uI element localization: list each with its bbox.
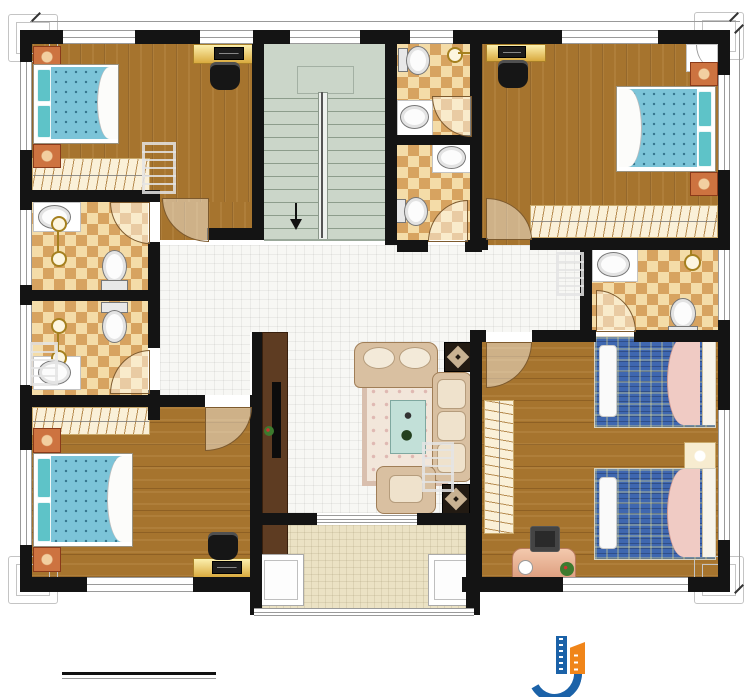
window [20, 450, 32, 545]
sofa-cushion [389, 475, 423, 503]
wall-segment [32, 190, 160, 202]
sink-basin [38, 360, 71, 385]
logo-building-blue [556, 636, 567, 674]
pillow [599, 345, 617, 417]
towel-ring [684, 254, 701, 271]
wall-segment [252, 44, 264, 240]
wall-segment [385, 44, 397, 245]
wall-segment [718, 540, 730, 592]
blanket-fold [667, 337, 700, 425]
window [718, 250, 730, 320]
window [200, 30, 253, 44]
speaker-cone [447, 346, 470, 369]
towel-ring [51, 216, 67, 232]
wall-segment [207, 228, 252, 240]
wall-segment [250, 407, 262, 592]
double-bed-tr [616, 86, 716, 172]
wardrobe-bedroom-tr [530, 205, 718, 238]
dimension-line-right [739, 28, 740, 590]
wall-segment [532, 330, 592, 342]
pillow [37, 502, 51, 542]
wall-segment [360, 30, 410, 44]
tv [272, 382, 281, 458]
title-block [0, 620, 750, 697]
window [290, 30, 360, 44]
balcony-planter [258, 554, 304, 606]
sofa-pillow [363, 347, 395, 369]
balcony-outer-rail [254, 608, 474, 616]
window [20, 305, 32, 385]
stair-handrail-line [321, 92, 323, 238]
wall-segment [148, 190, 160, 202]
double-bed-bl [33, 453, 133, 547]
dimension-line-top [30, 21, 740, 22]
wall-segment [20, 545, 32, 592]
duvet-fold [97, 67, 118, 139]
window [562, 30, 658, 44]
bed-foot [702, 337, 715, 425]
laptop [214, 47, 244, 60]
window [563, 577, 688, 592]
wall-segment [397, 135, 470, 145]
window [63, 30, 135, 44]
wall-segment [718, 30, 730, 75]
wall-segment [253, 30, 290, 44]
sofa-cushion [437, 443, 466, 473]
double-bed-tl [33, 64, 119, 144]
sofa-top [354, 342, 438, 388]
wall-segment [580, 250, 592, 332]
sink-basin [400, 105, 429, 129]
speaker-center [455, 354, 462, 361]
coffee-table [390, 400, 426, 454]
wall-segment [482, 330, 486, 342]
toilet-bowl [102, 310, 127, 343]
nightstand [33, 428, 61, 453]
armchair-bottom [376, 466, 436, 514]
title-underline [62, 672, 216, 675]
wall-segment [397, 240, 428, 252]
cup [518, 560, 533, 575]
stair-direction-arrowhead [290, 219, 302, 230]
wall-segment [718, 170, 730, 250]
office-chair [498, 60, 528, 88]
toilet-bowl [406, 46, 430, 75]
pillow [37, 105, 51, 138]
wall-segment [20, 30, 32, 62]
plant [264, 426, 274, 436]
sliding-door-balcony [317, 515, 417, 523]
nightstand [690, 172, 718, 196]
nightstand [690, 62, 718, 86]
twin-bed-2 [594, 468, 716, 560]
toilet-bowl [670, 298, 696, 329]
toilet-bowl [404, 197, 428, 226]
blanket-fold [667, 469, 700, 557]
nightstand [33, 144, 61, 168]
wall-segment [634, 330, 718, 342]
toilet-bowl [102, 250, 127, 283]
sink-basin [437, 146, 466, 169]
office-chair [208, 532, 238, 560]
wall-segment [417, 513, 466, 525]
speaker-cone [445, 488, 468, 511]
stair-landing [297, 66, 354, 94]
pillow [698, 91, 712, 127]
brand-logo-icon [528, 632, 590, 688]
stair-edge-line [264, 239, 385, 241]
window [718, 75, 730, 170]
window [87, 577, 193, 592]
office-chair [210, 62, 240, 90]
speaker [442, 484, 470, 514]
window [410, 30, 453, 44]
towel-ring [51, 318, 67, 334]
laptop [212, 561, 242, 574]
twin-bed-1 [594, 336, 716, 428]
wall-segment [252, 332, 262, 407]
pillow [37, 458, 51, 498]
towel-ring [447, 47, 463, 63]
wall-segment [530, 238, 718, 250]
wall-segment [20, 385, 32, 450]
stair-handrail [318, 92, 328, 240]
wall-segment [470, 330, 482, 592]
pillow [37, 69, 51, 102]
sofa-cushion [437, 379, 466, 409]
floor-plan-canvas [0, 0, 750, 697]
window [718, 410, 730, 540]
sink-basin [597, 252, 630, 277]
wall-segment [470, 44, 482, 250]
wardrobe-bedroom-br [484, 400, 514, 534]
window [20, 210, 32, 285]
computer-monitor [530, 526, 560, 552]
speaker-center [453, 496, 460, 503]
window [20, 62, 32, 150]
towel-ring [51, 251, 67, 267]
wall-segment [148, 242, 160, 348]
speaker [444, 342, 472, 372]
flower [560, 562, 574, 576]
wall-segment [32, 290, 148, 301]
duvet-fold [107, 456, 132, 542]
title-underline-thin [62, 678, 216, 679]
wall-segment [20, 285, 32, 305]
laptop [498, 46, 526, 58]
nightstand [33, 547, 61, 572]
wall-segment [135, 30, 200, 44]
towel-rod [458, 52, 470, 54]
floor-corridor [160, 245, 250, 395]
sofa-pillow [399, 347, 431, 369]
pillow [698, 131, 712, 167]
sofa-cushion [437, 411, 466, 441]
pillow [599, 477, 617, 549]
wall-segment [20, 150, 32, 210]
wall-segment [262, 513, 317, 525]
sofa-right [432, 372, 472, 482]
logo-building-orange [570, 642, 585, 674]
wall-segment [453, 30, 562, 44]
bed-foot [702, 469, 715, 557]
wall-segment [718, 320, 730, 410]
wall-segment [32, 395, 205, 407]
nightstand [684, 442, 716, 470]
